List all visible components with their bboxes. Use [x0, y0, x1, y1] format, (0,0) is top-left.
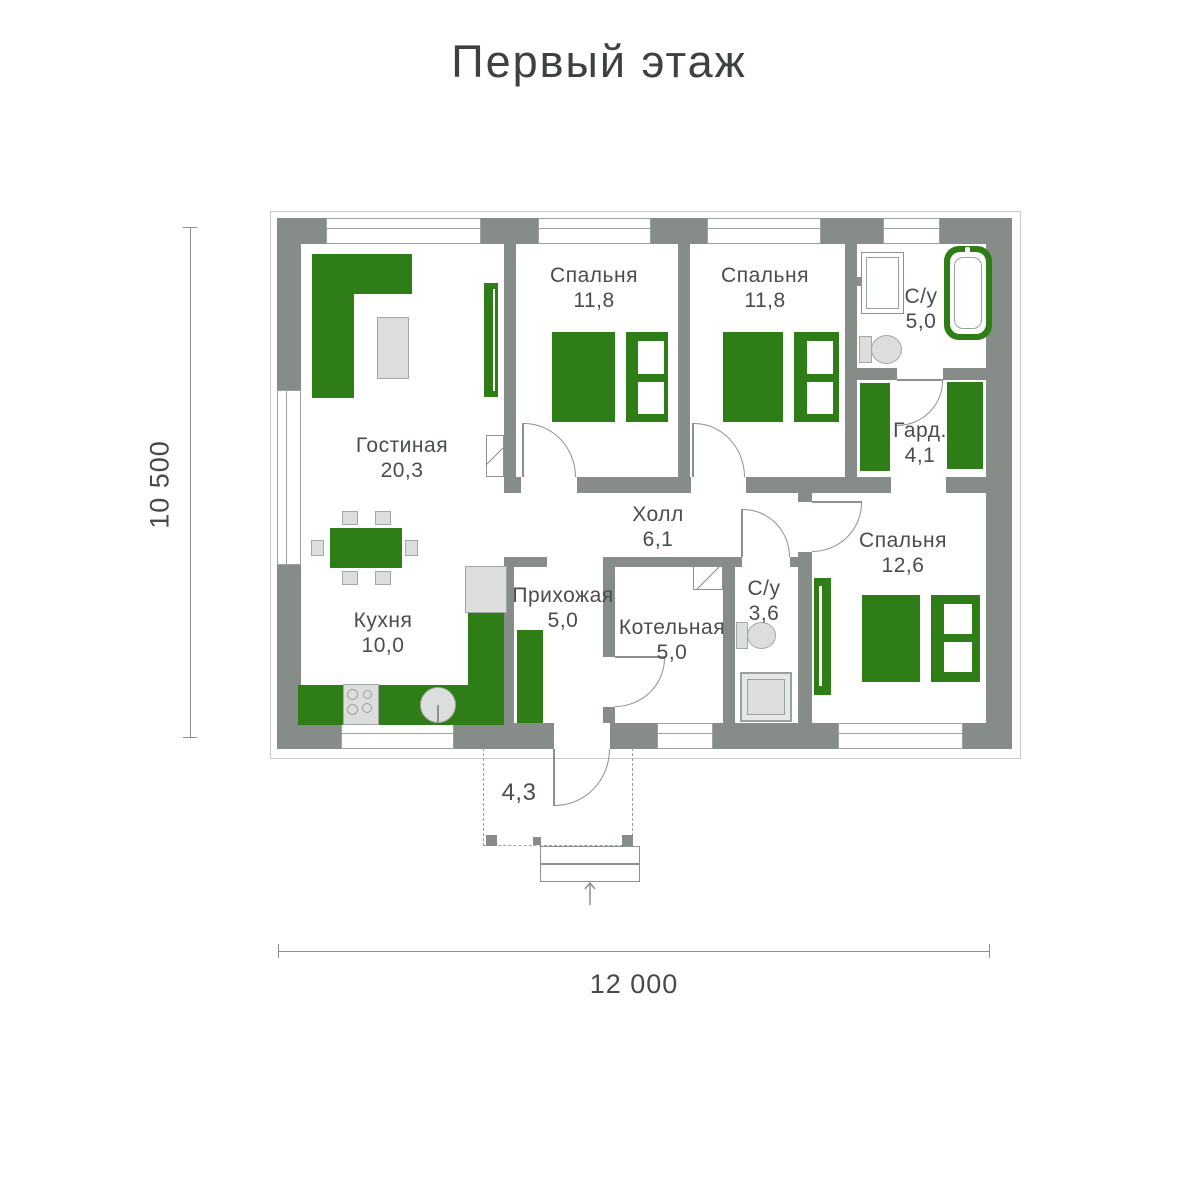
pillow	[638, 341, 664, 374]
room-area: 12,6	[859, 553, 947, 578]
window-bathroom	[883, 218, 940, 244]
bathtub-basin	[954, 257, 982, 329]
pillow	[944, 604, 972, 634]
dimension-tick	[183, 737, 197, 738]
burner	[362, 703, 372, 713]
burner	[363, 690, 372, 699]
wall-entry-boiler-b	[603, 707, 615, 723]
chair	[311, 540, 324, 556]
dimension-tick	[278, 944, 279, 958]
dimension-tick	[183, 227, 197, 228]
wardrobe-unit-right	[947, 382, 983, 469]
pillow	[944, 642, 972, 672]
room-name: С/у	[748, 576, 781, 601]
room-area: 11,8	[721, 288, 809, 313]
dimension-width-label: 12 000	[434, 969, 834, 1000]
wall-hall-bedroom3-b	[798, 552, 812, 723]
room-label-bedroom-3: Спальня 12,6	[859, 528, 947, 578]
tv-screen-line	[819, 586, 822, 686]
room-label-hall: Холл 6,1	[632, 502, 684, 552]
window-bedroom-3	[838, 723, 963, 749]
room-name: Спальня	[721, 263, 809, 288]
floor-plan-page: Первый этаж	[0, 0, 1198, 1200]
bathtub-tap	[965, 247, 970, 254]
room-name: Спальня	[550, 263, 638, 288]
room-name: Гостиная	[356, 433, 448, 458]
room-area: 5,0	[619, 640, 725, 665]
chair	[342, 571, 358, 585]
wall-bedroom2-bathroom	[845, 244, 857, 493]
shower-tray	[740, 672, 792, 722]
wall-hall-bedroom3-a	[798, 493, 812, 502]
room-area: 4,3	[502, 780, 537, 805]
window-kitchen	[341, 723, 454, 749]
toilet-bowl	[747, 622, 776, 649]
burner	[347, 704, 358, 715]
dimension-line-height	[190, 228, 191, 738]
room-name: Кухня	[354, 608, 413, 633]
room-area: 11,8	[550, 288, 638, 313]
tv-unit-bedroom-3	[814, 578, 831, 695]
bed-runner	[920, 595, 931, 682]
wall-hall-north-c	[746, 477, 891, 493]
window-bedroom-2	[707, 218, 821, 244]
sofa-side	[312, 254, 354, 398]
vent-shaft-boiler	[693, 566, 723, 590]
chair	[342, 511, 358, 525]
room-name: С/у	[905, 284, 938, 309]
shower-cabin	[861, 252, 904, 314]
window-living-room	[326, 218, 481, 244]
burner	[347, 689, 358, 700]
bed-bedroom-3	[862, 595, 980, 682]
bed-runner	[783, 332, 794, 422]
front-door-opening	[554, 722, 610, 750]
tv-unit-living	[484, 283, 498, 397]
room-area: 5,0	[905, 309, 938, 334]
dining-table	[330, 528, 402, 568]
room-label-bedroom-1: Спальня 11,8	[550, 263, 638, 313]
pillow	[807, 341, 833, 374]
wall-hall-north-a	[504, 477, 521, 493]
room-area: 4,1	[893, 443, 947, 468]
bed-bedroom-2	[723, 332, 839, 422]
kitchen-counter-side	[468, 613, 504, 685]
chair	[405, 540, 418, 556]
bed-runner	[615, 332, 626, 422]
room-name: Котельная	[619, 615, 725, 640]
porch-post	[486, 835, 497, 846]
room-label-bathroom: С/у 5,0	[905, 284, 938, 334]
room-name: Холл	[632, 502, 684, 527]
fridge	[465, 566, 507, 613]
bathtub	[944, 246, 992, 340]
wall-hall-south-c	[790, 557, 798, 567]
wall-bathroom-wardrobe-b	[943, 368, 986, 380]
room-name: Спальня	[859, 528, 947, 553]
room-area: 20,3	[356, 458, 448, 483]
shower-cabin-inner	[866, 257, 899, 309]
sink-tap	[437, 705, 439, 722]
room-label-entry: Прихожая 5,0	[512, 583, 613, 633]
chair	[375, 571, 391, 585]
kitchen-counter-bottom	[298, 685, 504, 725]
wall-hall-north-d	[946, 477, 986, 493]
bed-bedroom-1	[552, 332, 668, 422]
room-label-bedroom-2: Спальня 11,8	[721, 263, 809, 313]
tv-screen-line	[493, 289, 495, 391]
stove	[343, 684, 379, 725]
window-bedroom-1	[538, 218, 651, 244]
pillow	[807, 382, 833, 414]
coffee-table	[377, 317, 409, 379]
room-label-wardrobe: Гард. 4,1	[893, 418, 947, 468]
dimension-tick	[989, 944, 990, 958]
room-label-living: Гостиная 20,3	[356, 433, 448, 483]
porch-area-label: 4,3	[502, 780, 537, 805]
room-area: 5,0	[512, 608, 613, 633]
room-label-wc: С/у 3,6	[748, 576, 781, 626]
dimension-line-width	[279, 951, 990, 952]
window-living-room-left	[277, 390, 301, 565]
room-area: 6,1	[632, 527, 684, 552]
kitchen-sink	[420, 687, 456, 723]
entrance-arrow-icon	[583, 878, 597, 906]
page-title: Первый этаж	[0, 36, 1198, 88]
room-name: Прихожая	[512, 583, 613, 608]
porch-post	[622, 835, 633, 846]
room-name: Гард.	[893, 418, 947, 443]
shower-tray-inner	[747, 679, 785, 715]
wall-bathroom-wardrobe-a	[857, 368, 897, 380]
wall-living-bedroom1	[504, 244, 516, 493]
porch-post	[533, 837, 541, 845]
wall-bedroom1-bedroom2	[678, 244, 690, 493]
wardrobe-entry	[517, 630, 543, 723]
porch-step	[540, 846, 640, 864]
room-label-kitchen: Кухня 10,0	[354, 608, 413, 658]
toilet-bowl	[871, 335, 902, 364]
wall-hall-north-b	[577, 477, 691, 493]
chair	[375, 511, 391, 525]
wardrobe-unit-left	[860, 383, 890, 471]
window-boiler-room	[657, 723, 713, 749]
room-area: 10,0	[354, 633, 413, 658]
room-label-boiler: Котельная 5,0	[619, 615, 725, 665]
pillow	[638, 382, 664, 414]
vent-shaft-living	[486, 435, 504, 477]
room-area: 3,6	[748, 601, 781, 626]
shower-handle	[857, 277, 862, 286]
dimension-height-label: 10 500	[145, 425, 176, 545]
